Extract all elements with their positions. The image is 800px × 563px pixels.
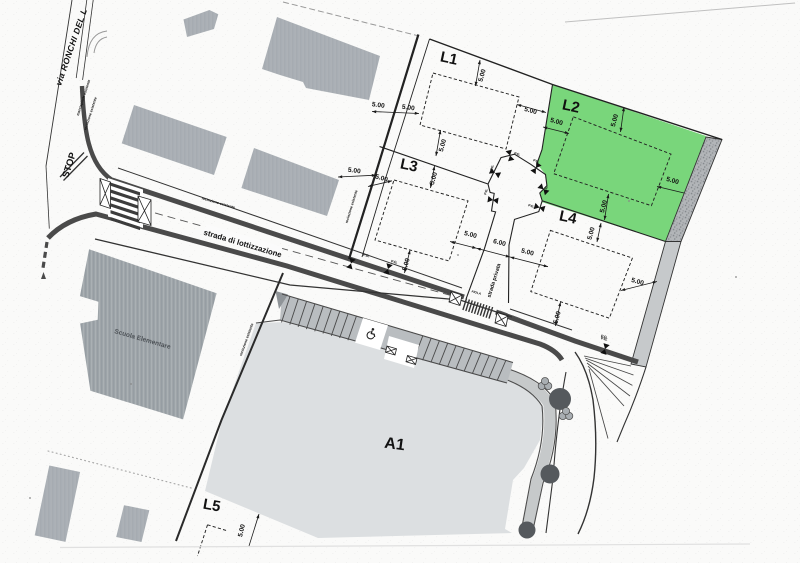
svg-text:L1: L1 <box>439 48 460 68</box>
svg-text:L3: L3 <box>399 155 420 175</box>
svg-text:L5: L5 <box>202 496 222 516</box>
svg-text:L2: L2 <box>561 96 582 116</box>
svg-text:A1: A1 <box>383 435 406 455</box>
